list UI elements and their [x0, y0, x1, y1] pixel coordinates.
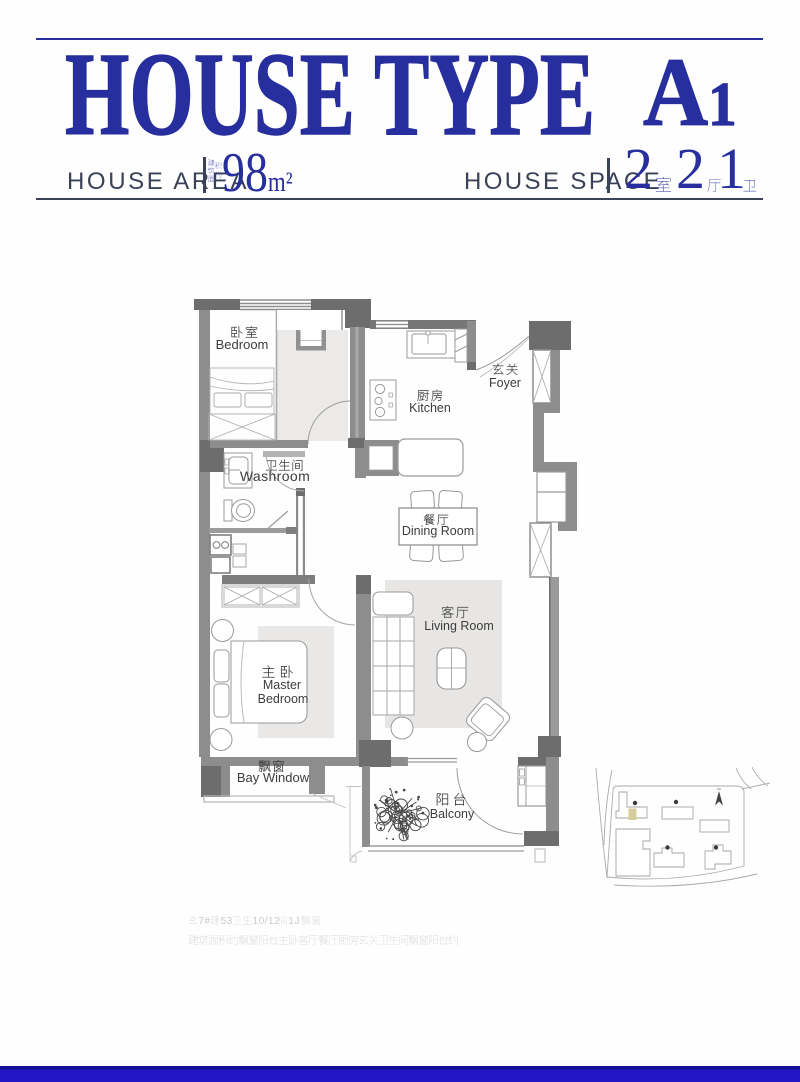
svg-text:Master: Master — [263, 678, 301, 692]
svg-text:Living Room: Living Room — [424, 619, 493, 633]
svg-text:Bedroom: Bedroom — [258, 692, 309, 706]
svg-text:Bay Window: Bay Window — [237, 770, 310, 785]
svg-text:Dining Room: Dining Room — [402, 524, 474, 538]
svg-text:53: 53 — [221, 916, 233, 927]
svg-text:Bedroom: Bedroom — [216, 337, 269, 352]
svg-text:Balcony: Balcony — [430, 807, 475, 821]
svg-text:7#: 7# — [199, 916, 211, 927]
svg-text:1J: 1J — [288, 916, 300, 927]
svg-text:Foyer: Foyer — [489, 376, 521, 390]
svg-text:10/12: 10/12 — [253, 916, 281, 927]
svg-text:Kitchen: Kitchen — [409, 401, 451, 415]
